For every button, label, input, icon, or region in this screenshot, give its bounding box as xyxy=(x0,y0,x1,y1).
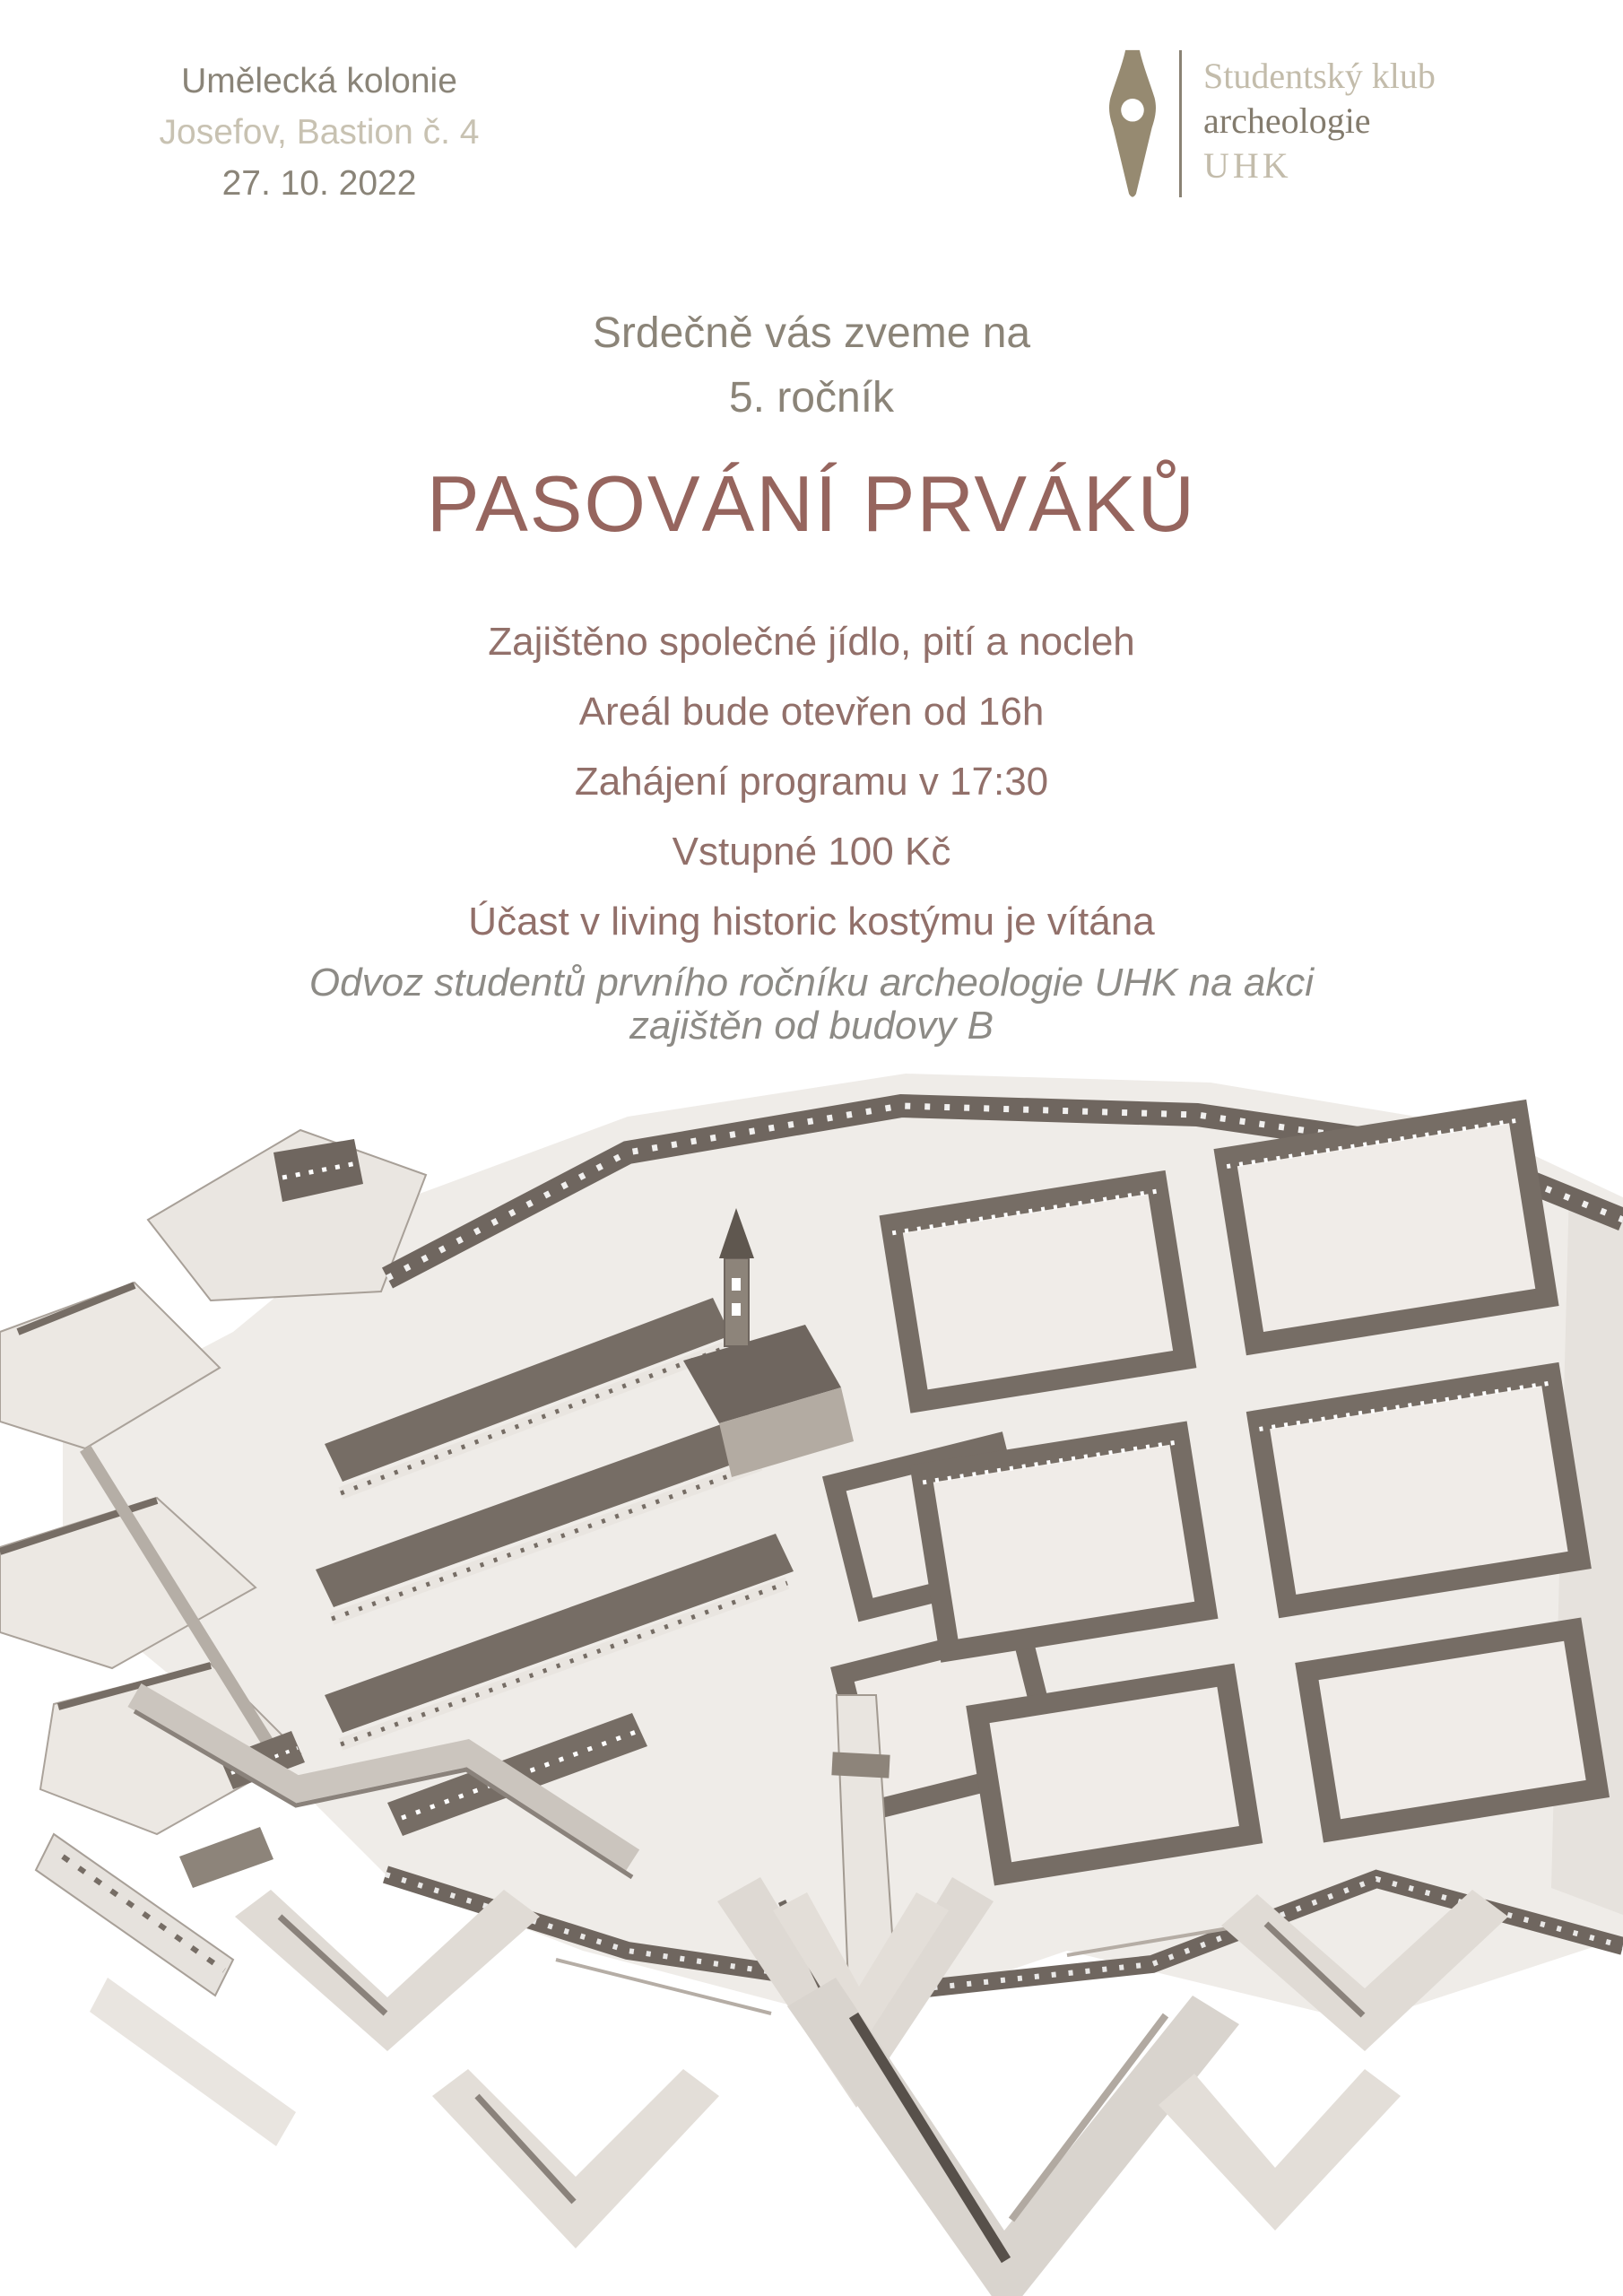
detail-line: Zajištěno společné jídlo, pití a nocleh xyxy=(0,607,1623,677)
pen-nib-icon xyxy=(1106,47,1159,201)
invitation-line1: Srdečně vás zveme na xyxy=(0,301,1623,366)
invitation-block: Srdečně vás zveme na 5. ročník xyxy=(0,301,1623,430)
venue-name: Umělecká kolonie xyxy=(86,56,552,107)
club-name: Studentský klub archeologie UHK xyxy=(1203,54,1436,188)
detail-line: Zahájení programu v 17:30 xyxy=(0,747,1623,817)
detail-line: Účast v living historic kostýmu je vítán… xyxy=(0,887,1623,957)
club-name-line2: archeologie xyxy=(1203,99,1436,143)
page-title: PASOVÁNÍ PRVÁKŮ xyxy=(0,459,1623,549)
fortress-model-photo xyxy=(0,1063,1623,2296)
fortress-town xyxy=(0,1074,1623,2022)
event-details: Zajištěno společné jídlo, pití a nocleh … xyxy=(0,607,1623,957)
logo-divider xyxy=(1179,50,1182,197)
invitation-line2: 5. ročník xyxy=(0,366,1623,430)
transport-note: Odvoz studentů prvního ročníku archeolog… xyxy=(0,961,1623,1048)
detail-line: Areál bude otevřen od 16h xyxy=(0,677,1623,747)
club-name-line1: Studentský klub xyxy=(1203,54,1436,99)
event-date: 27. 10. 2022 xyxy=(86,158,552,209)
event-info-block: Umělecká kolonie Josefov, Bastion č. 4 2… xyxy=(86,56,552,209)
detail-line: Vstupné 100 Kč xyxy=(0,817,1623,887)
venue-location: Josefov, Bastion č. 4 xyxy=(86,107,552,158)
transport-note-text: Odvoz studentů prvního ročníku archeolog… xyxy=(309,961,1314,1048)
club-logo: Studentský klub archeologie UHK xyxy=(1106,47,1436,201)
event-poster: Umělecká kolonie Josefov, Bastion č. 4 2… xyxy=(0,0,1623,2296)
club-name-line3: UHK xyxy=(1203,143,1436,188)
